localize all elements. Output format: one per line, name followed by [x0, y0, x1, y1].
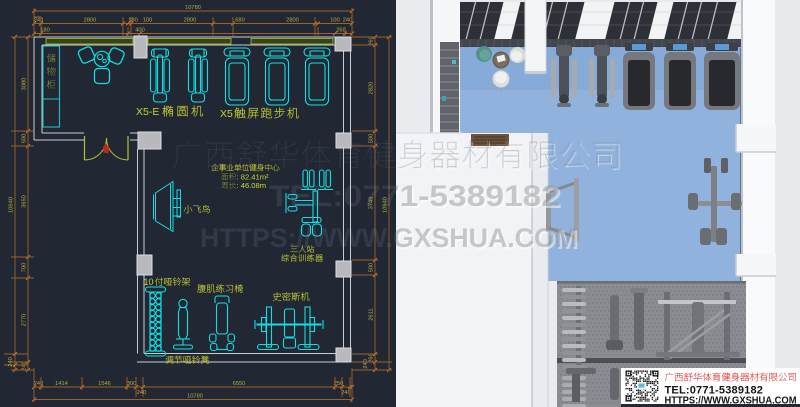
svg-text:HTTPS://WWW.GXSHUA.COM: HTTPS://WWW.GXSHUA.COM: [396, 223, 577, 253]
svg-text:100: 100: [330, 18, 340, 24]
svg-text:HTTPS://WWW.GXSHUA.COM: HTTPS://WWW.GXSHUA.COM: [200, 223, 397, 253]
svg-text:X5: X5: [220, 108, 233, 120]
svg-text:240: 240: [137, 390, 147, 396]
svg-text:6550: 6550: [233, 381, 246, 387]
svg-text:180: 180: [40, 28, 50, 34]
svg-text:240: 240: [22, 361, 28, 371]
svg-text:10940: 10940: [9, 197, 15, 213]
svg-text:X5-E: X5-E: [136, 106, 159, 118]
svg-text:1546: 1546: [98, 381, 111, 387]
svg-text:700: 700: [22, 263, 28, 273]
svg-text:2800: 2800: [84, 18, 97, 24]
svg-text:500: 500: [22, 134, 28, 144]
svg-text:240: 240: [34, 18, 44, 24]
svg-text:10780: 10780: [187, 394, 203, 400]
svg-text:2770: 2770: [22, 314, 28, 327]
svg-text:500: 500: [369, 134, 375, 144]
svg-text:1414: 1414: [55, 381, 68, 387]
svg-text:2820: 2820: [369, 82, 375, 95]
svg-text:TEL:0771-5389182: TEL:0771-5389182: [269, 180, 397, 213]
svg-text:240: 240: [341, 390, 351, 396]
svg-text:180: 180: [128, 18, 138, 24]
svg-text:3080: 3080: [22, 78, 28, 91]
svg-text:300: 300: [127, 381, 137, 387]
svg-text:680: 680: [235, 18, 245, 24]
svg-text:240: 240: [34, 381, 44, 387]
svg-text:240: 240: [363, 359, 369, 369]
svg-text:2800: 2800: [286, 18, 299, 24]
svg-text:400: 400: [135, 28, 145, 34]
svg-text:260: 260: [369, 36, 375, 46]
svg-text:240: 240: [343, 18, 353, 24]
svg-text:10: 10: [144, 277, 154, 287]
svg-text:2800: 2800: [184, 18, 197, 24]
svg-text:500: 500: [369, 263, 375, 273]
svg-text:2611: 2611: [369, 308, 375, 320]
svg-text:10780: 10780: [185, 5, 201, 11]
svg-text:3650: 3650: [22, 195, 28, 208]
svg-text:260: 260: [336, 28, 346, 34]
svg-text:240: 240: [8, 357, 14, 367]
svg-text:100: 100: [143, 18, 153, 24]
svg-text:TEL:0771-5389182: TEL:0771-5389182: [396, 180, 560, 213]
svg-text:260: 260: [369, 353, 375, 363]
svg-text:: 46.08m: : 46.08m: [237, 181, 267, 190]
